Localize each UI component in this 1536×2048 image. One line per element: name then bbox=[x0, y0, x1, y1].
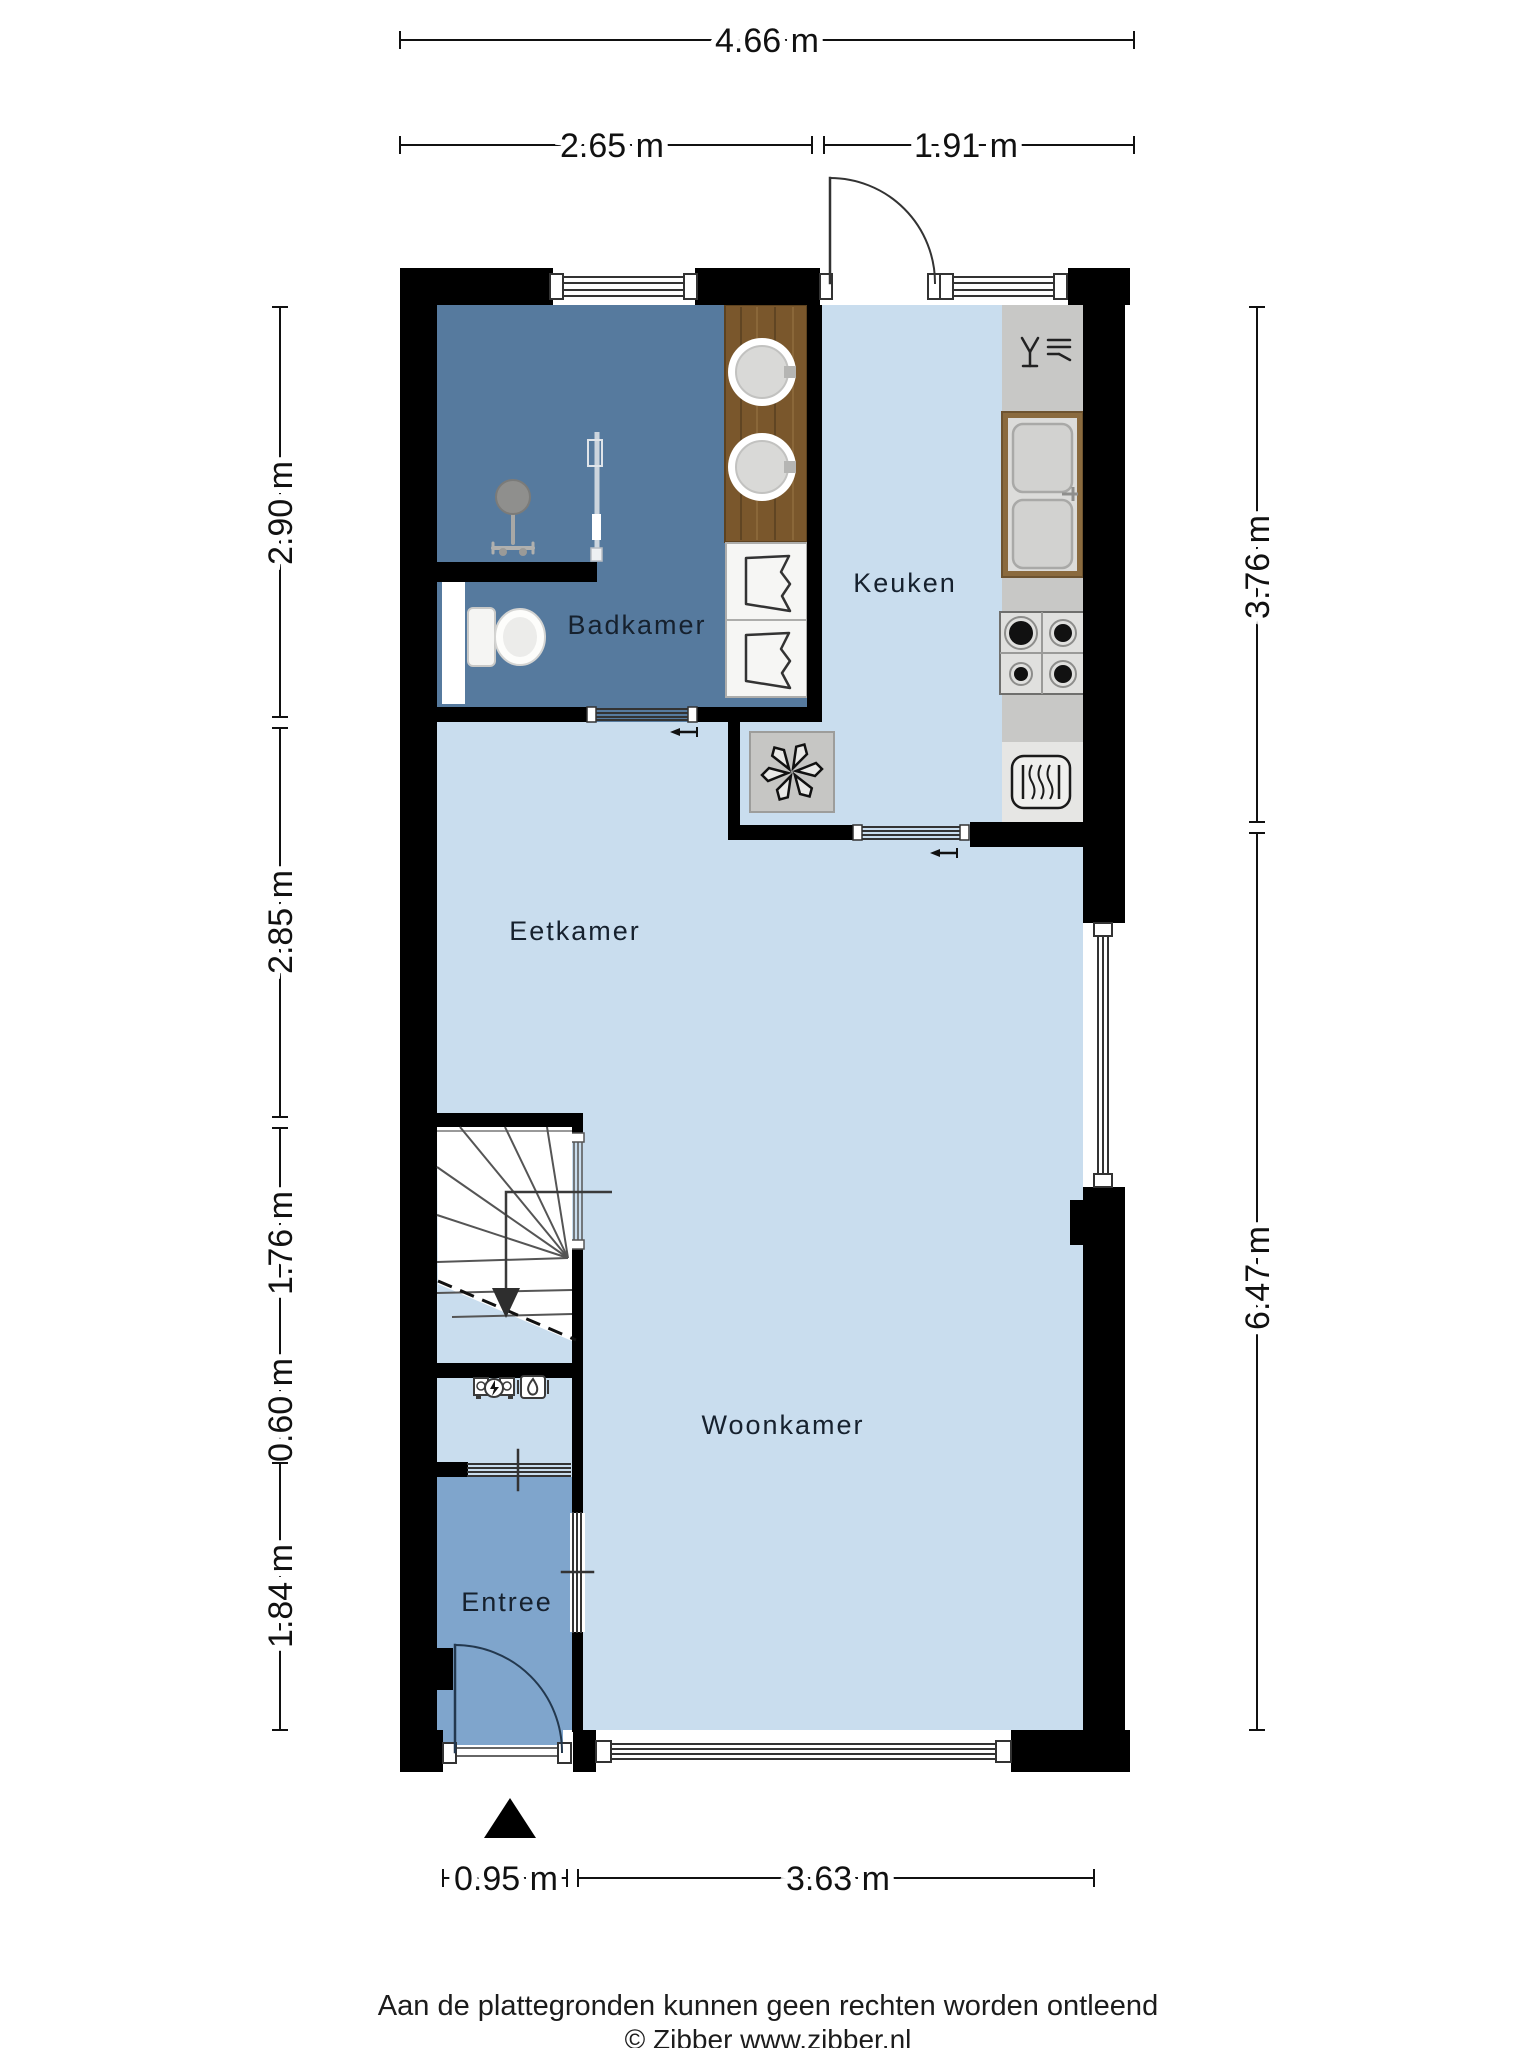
entree-east-wall bbox=[572, 1632, 583, 1732]
entree-door-floor bbox=[443, 1730, 563, 1745]
sink-icon bbox=[728, 433, 796, 501]
bathroom-kitchen-wall bbox=[807, 305, 822, 722]
dim-label: 4.66 m bbox=[715, 22, 819, 60]
stove-icon bbox=[1000, 612, 1084, 694]
stairs-north-wall bbox=[437, 1113, 583, 1127]
bathroom-door-leaf bbox=[442, 582, 465, 704]
dim-label: 3.76 m bbox=[1239, 515, 1277, 619]
radiator-bump bbox=[437, 1648, 453, 1690]
bathroom-south-wall-left bbox=[433, 707, 587, 722]
dim-left-column: 2.90 m 2.85 m 1.76 m 0.60 m 1.84 m bbox=[262, 307, 300, 1730]
top-wall-left bbox=[400, 268, 553, 305]
bottom-wall-jamb bbox=[573, 1730, 596, 1772]
stairs-east-wall-bottom bbox=[572, 1247, 583, 1363]
left-exterior-wall bbox=[400, 268, 437, 1772]
meter-entree-wall bbox=[437, 1462, 468, 1477]
electric-meter-icon bbox=[474, 1378, 514, 1399]
wardrobe-icon bbox=[726, 543, 807, 620]
dim-right-column: 3.76 m 6.47 m bbox=[1239, 307, 1277, 1730]
credit-text: © Zibber www.zibber.nl bbox=[0, 2024, 1536, 2048]
ventilation-fan-icon bbox=[750, 732, 834, 812]
bottom-wall-right-corner bbox=[1011, 1730, 1130, 1772]
dim-label: 0.95 m bbox=[454, 1860, 558, 1898]
dim-top-total: 4.66 m bbox=[400, 22, 1134, 60]
right-wall-column bbox=[1070, 1200, 1083, 1245]
bathroom-south-wall-right bbox=[695, 707, 822, 722]
eetkamer-label: Eetkamer bbox=[509, 916, 641, 946]
top-door bbox=[820, 178, 940, 299]
bottom-wall-left bbox=[400, 1730, 443, 1772]
badkamer-label: Badkamer bbox=[567, 610, 706, 640]
meter-closet bbox=[474, 1376, 548, 1399]
right-exterior-wall-lower bbox=[1083, 1187, 1125, 1730]
wardrobe-icon bbox=[726, 620, 807, 697]
kitchen-south-wall-left bbox=[740, 825, 853, 840]
oven-icon bbox=[1002, 742, 1083, 822]
dim-label: 2.65 m bbox=[560, 127, 664, 165]
dim-label: 0.60 m bbox=[262, 1358, 300, 1462]
hall-east-wall bbox=[572, 1363, 583, 1513]
window bbox=[1094, 923, 1112, 1187]
dim-top-right: 1.91 m bbox=[824, 127, 1134, 165]
dim-label: 2.90 m bbox=[262, 461, 300, 565]
dim-label: 1.76 m bbox=[262, 1191, 300, 1295]
top-wall-right-corner bbox=[1068, 268, 1130, 305]
entree-label: Entree bbox=[461, 1587, 553, 1617]
window bbox=[940, 274, 1067, 299]
dim-label: 1.84 m bbox=[262, 1544, 300, 1648]
top-wall-mid bbox=[695, 268, 820, 305]
vanity-counter bbox=[725, 305, 807, 542]
dim-bottom-right: 3.63 m bbox=[578, 1860, 1094, 1898]
floorplan-page: Badkamer Keuken Eetkamer Woonkamer Entre… bbox=[0, 0, 1536, 2048]
dim-bottom-left: 0.95 m bbox=[443, 1860, 567, 1898]
kitchen-south-wall-right bbox=[970, 822, 1125, 847]
disclaimer-text: Aan de plattegronden kunnen geen rechten… bbox=[0, 1990, 1536, 2023]
woonkamer-label: Woonkamer bbox=[701, 1410, 864, 1440]
dim-label: 6.47 m bbox=[1239, 1226, 1277, 1330]
dim-top-left: 2.65 m bbox=[400, 127, 812, 165]
window bbox=[596, 1741, 1011, 1762]
shower-divider-wall bbox=[437, 562, 597, 582]
toilet-icon bbox=[468, 608, 545, 666]
keuken-label: Keuken bbox=[853, 568, 957, 598]
sink-icon bbox=[728, 338, 796, 406]
floorplan-drawing: Badkamer Keuken Eetkamer Woonkamer Entre… bbox=[0, 0, 1536, 2048]
gas-meter-icon bbox=[518, 1376, 548, 1398]
kitchen-nook-wall bbox=[728, 722, 740, 840]
dim-label: 3.63 m bbox=[786, 1860, 890, 1898]
entrance-triangle-icon bbox=[484, 1798, 536, 1838]
stairs-south-wall bbox=[437, 1363, 583, 1378]
dim-label: 1.91 m bbox=[914, 127, 1018, 165]
window bbox=[550, 274, 697, 299]
kitchen-sink-icon bbox=[1002, 412, 1083, 577]
dim-label: 2.85 m bbox=[262, 870, 300, 974]
